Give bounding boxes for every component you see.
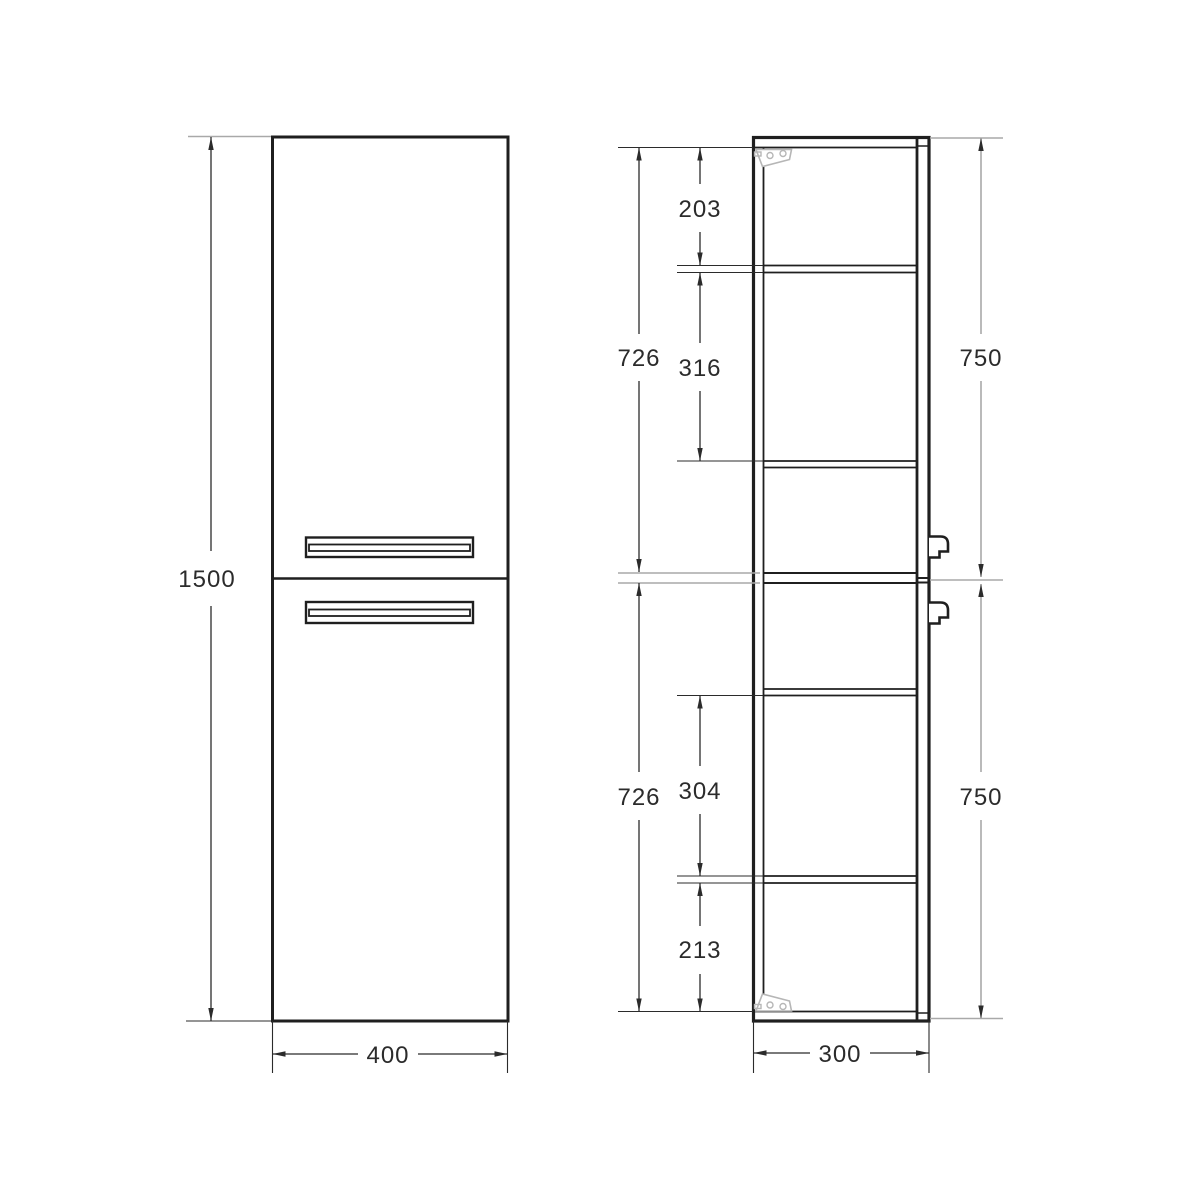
arrowhead-up [636, 148, 641, 161]
arrowhead-up [697, 148, 702, 161]
side-handle-upper [929, 537, 948, 558]
arrowhead-down [697, 863, 702, 876]
arrowhead-up [697, 273, 702, 286]
arrowhead-up [978, 138, 983, 151]
front-view [273, 137, 509, 1021]
arrowhead-up [208, 137, 213, 150]
arrowhead-down [978, 1006, 983, 1019]
technical-drawing-canvas: 1500 400 [0, 0, 1182, 1182]
side-view [754, 138, 949, 1022]
dim-label-lower-door: 750 [959, 784, 1002, 811]
dim-label-upper-shelf-gap: 316 [678, 355, 721, 382]
handle-outer [306, 602, 473, 623]
arrowhead-down [697, 448, 702, 461]
arrowhead-down [697, 253, 702, 266]
dim-label-top-shelf-gap: 203 [678, 196, 721, 223]
arrowhead-left [273, 1051, 286, 1056]
arrowhead-down [697, 999, 702, 1012]
arrowhead-up [978, 584, 983, 597]
side-cabinet-outline [754, 138, 930, 1022]
dim-label-lower-shelf-gap: 304 [678, 778, 721, 805]
arrowhead-right [495, 1051, 508, 1056]
dim-label-lower-interior: 726 [617, 784, 660, 811]
dim-label-upper-door: 750 [959, 345, 1002, 372]
dim-label-depth: 300 [818, 1041, 861, 1068]
arrowhead-right [916, 1050, 929, 1055]
dim-label-front-width: 400 [366, 1042, 409, 1069]
arrowhead-down [978, 564, 983, 577]
arrowhead-up [697, 696, 702, 709]
front-handle-upper [306, 538, 473, 558]
arrowhead-up [636, 583, 641, 596]
front-handle-lower [306, 602, 473, 623]
arrowhead-left [754, 1050, 767, 1055]
cabinet-dimension-drawing: 1500 400 [0, 0, 1182, 1182]
side-handle-lower [929, 603, 948, 624]
dim-label-bottom-gap: 213 [678, 937, 721, 964]
arrowhead-down [636, 999, 641, 1012]
dim-label-front-height: 1500 [178, 566, 235, 593]
arrowhead-down [208, 1008, 213, 1021]
arrowhead-up [697, 883, 702, 896]
dim-label-upper-interior: 726 [617, 345, 660, 372]
arrowhead-down [636, 559, 641, 572]
handle-outer [306, 538, 473, 558]
